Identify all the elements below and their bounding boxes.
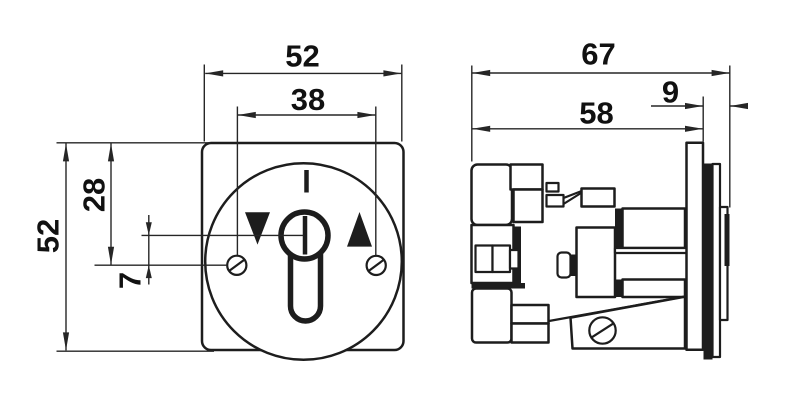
arrowhead — [108, 143, 114, 161]
front-view-object — [202, 143, 404, 360]
arrowhead — [685, 126, 703, 132]
contact-block — [547, 195, 564, 207]
front-view: 52 38 52 28 7 — [31, 39, 404, 360]
arrowhead — [146, 222, 152, 235]
drawing-canvas: 52 38 52 28 7 — [0, 0, 800, 410]
arrowhead — [383, 70, 401, 76]
dim-label-key-to-screw: 7 — [113, 272, 148, 289]
body-block-rear-top — [472, 165, 513, 226]
face-plate-edge — [687, 143, 704, 350]
dim-label-height: 52 — [31, 219, 66, 253]
housing-knob-seat — [570, 255, 577, 277]
lower-block-upper — [512, 305, 549, 324]
arrowhead — [205, 70, 223, 76]
arrowhead — [472, 70, 490, 76]
terminal-housing — [571, 297, 686, 349]
arrowhead — [63, 332, 69, 350]
arrowhead — [357, 112, 375, 118]
lower-block-lower — [512, 324, 549, 343]
arrowhead — [63, 143, 69, 161]
body-block-rear-bottom — [472, 289, 512, 343]
terminal-cell — [476, 246, 493, 273]
upper-arm-plate — [615, 248, 689, 253]
arrowhead — [238, 112, 256, 118]
center-housing — [577, 228, 616, 298]
arrowhead — [685, 103, 703, 109]
dim-label-width: 52 — [285, 39, 319, 74]
side-view-object — [472, 143, 730, 360]
dim-label-screw-spacing: 38 — [291, 82, 325, 117]
escutcheon-plate-edge — [713, 164, 721, 357]
contact-tab — [547, 183, 559, 192]
actuator-block — [582, 189, 615, 207]
dim-label-total-depth: 67 — [581, 37, 615, 72]
body-block-mid — [514, 190, 543, 223]
side-view: 67 58 9 — [472, 37, 749, 360]
lower-arm-block — [623, 280, 686, 298]
dim-label-rear-depth: 58 — [579, 96, 613, 131]
terminal-cell-small — [510, 250, 519, 269]
key-cap-edge — [725, 214, 730, 266]
arrowhead — [472, 126, 490, 132]
escutcheon-seal-edge — [704, 164, 713, 360]
arrowhead — [712, 70, 730, 76]
dim-label-top-to-screw: 28 — [77, 178, 112, 212]
technical-drawing: 52 38 52 28 7 — [0, 0, 800, 410]
upper-arm-block — [623, 209, 686, 249]
body-block-top — [511, 165, 543, 190]
arrowhead — [730, 103, 748, 109]
arrowhead — [108, 247, 114, 265]
terminal-cell — [493, 246, 511, 273]
housing-knob — [558, 253, 571, 278]
dim-label-front-protrusion: 9 — [662, 75, 679, 110]
